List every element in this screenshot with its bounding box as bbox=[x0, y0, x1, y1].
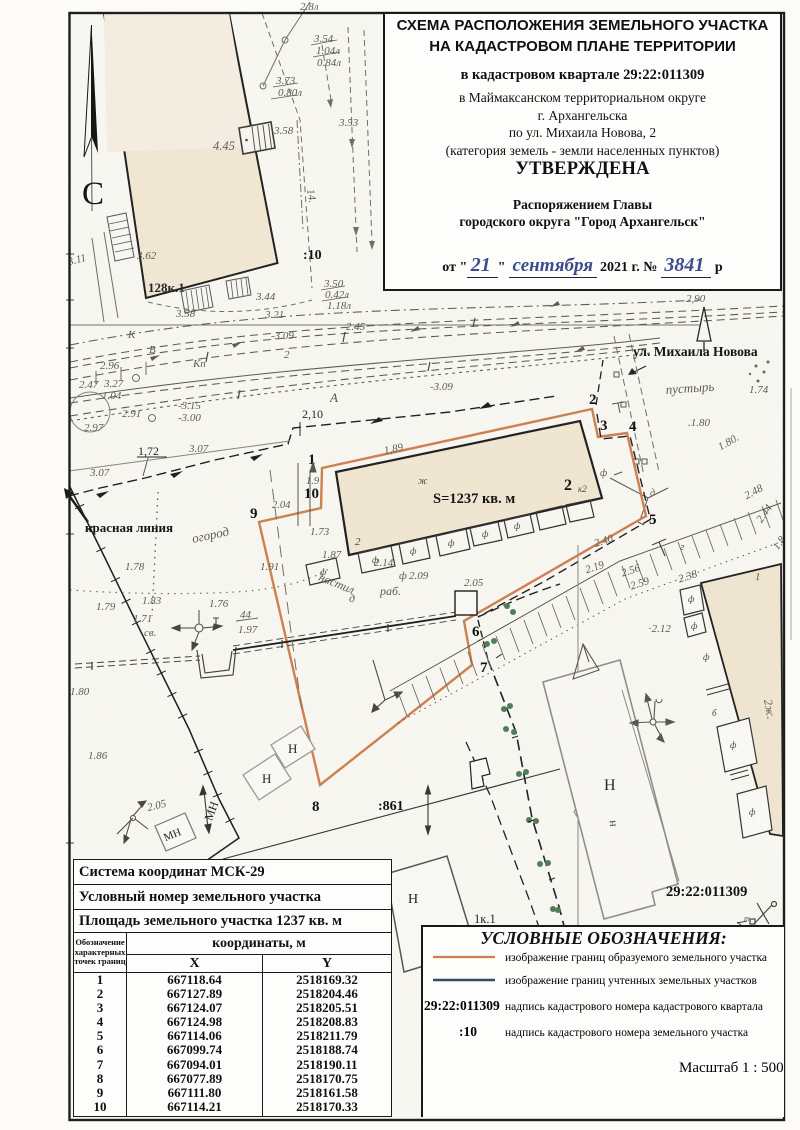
svg-text:29:22:011309: 29:22:011309 bbox=[424, 998, 500, 1013]
svg-text:изображение границ образуемого: изображение границ образуемого земельног… bbox=[505, 952, 767, 964]
svg-text::10: :10 bbox=[459, 1024, 477, 1039]
svg-text:Масштаб 1 : 500: Масштаб 1 : 500 bbox=[679, 1060, 784, 1076]
svg-text:изображение границ учтенных зе: изображение границ учтенных земельных уч… bbox=[505, 975, 758, 987]
svg-text:надпись кадастрового номера ка: надпись кадастрового номера кадастрового… bbox=[505, 1001, 763, 1013]
svg-text:надпись кадастрового номера зе: надпись кадастрового номера земельного у… bbox=[505, 1027, 748, 1039]
